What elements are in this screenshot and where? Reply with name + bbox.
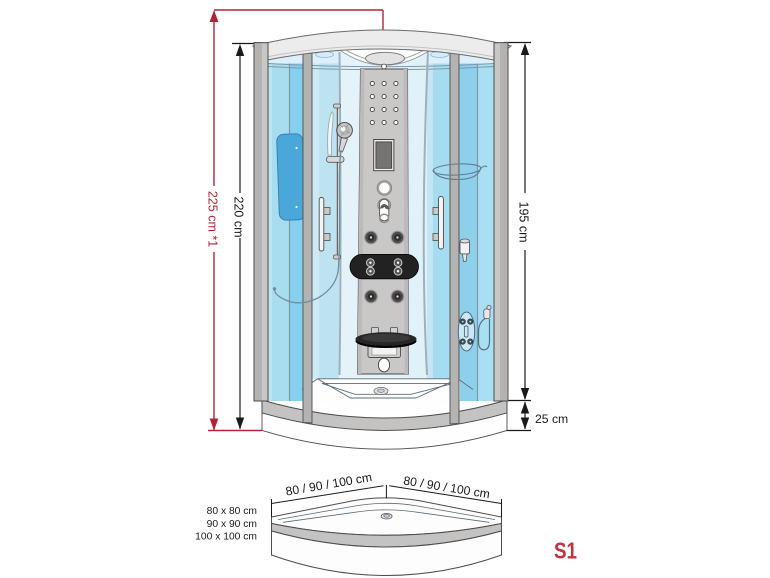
svg-text:220 cm: 220 cm bbox=[232, 197, 246, 238]
svg-text:25 cm: 25 cm bbox=[535, 412, 568, 426]
svg-text:S1: S1 bbox=[554, 538, 577, 564]
svg-text:100 x 100 cm: 100 x 100 cm bbox=[195, 532, 257, 543]
svg-text:225 cm *1: 225 cm *1 bbox=[206, 191, 220, 247]
svg-text:80 x 80 cm: 80 x 80 cm bbox=[207, 506, 257, 517]
svg-text:90 x 90 cm: 90 x 90 cm bbox=[207, 519, 257, 530]
svg-text:195 cm: 195 cm bbox=[517, 202, 531, 243]
svg-text:80 / 90 / 100 cm: 80 / 90 / 100 cm bbox=[402, 473, 491, 501]
